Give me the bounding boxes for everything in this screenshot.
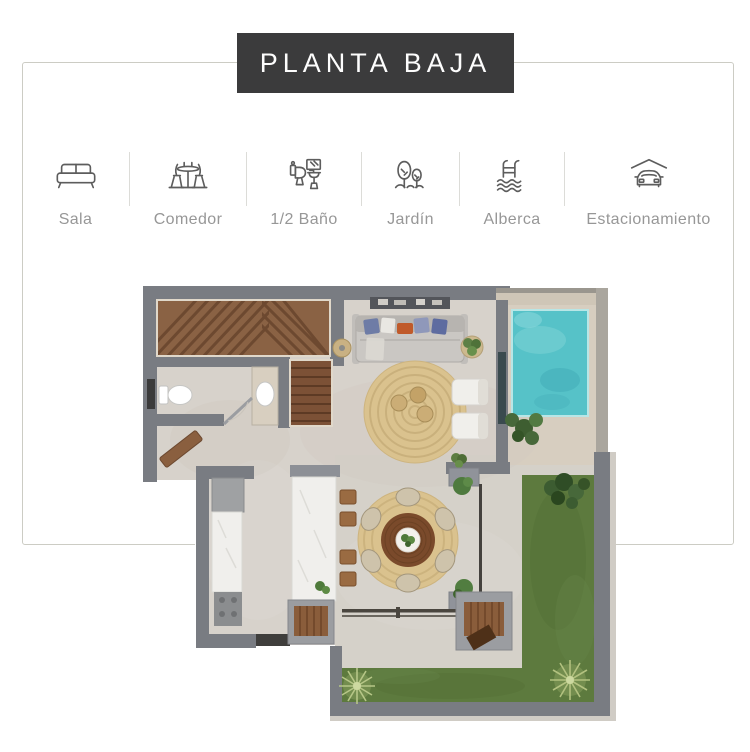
legend-item-jardin: Jardín (362, 150, 459, 246)
car-garage-icon (626, 150, 672, 202)
legend-item-sala: Sala (22, 150, 129, 246)
legend-item-estacionamiento: Estacionamiento (565, 150, 732, 246)
terrace (342, 592, 512, 650)
grill-structure (456, 592, 512, 650)
terrace-railing (342, 609, 458, 613)
legend-item-alberca: Alberca (460, 150, 564, 246)
legend-label: Jardín (387, 211, 434, 229)
legend-item-medio-bano: 1/2 Baño (247, 150, 361, 246)
legend-item-comedor: Comedor (130, 150, 246, 246)
amenities-legend: Sala Comedor (22, 150, 732, 246)
legend-label: Alberca (483, 211, 540, 229)
garden-trees-icon (388, 150, 434, 202)
legend-label: 1/2 Baño (270, 211, 337, 229)
pool-ladder-icon (489, 150, 535, 202)
dining-table-icon (165, 150, 211, 202)
half-bath-icon (281, 150, 327, 202)
stove (214, 592, 242, 626)
flyer: PLANTA BAJA Sala (0, 0, 750, 752)
island-cabinet (294, 606, 328, 636)
ornamental-grass-right (550, 660, 590, 700)
sofa-icon (53, 150, 99, 202)
island-plant (315, 581, 330, 594)
title-banner: PLANTA BAJA (237, 33, 514, 93)
legend-label: Estacionamiento (586, 211, 710, 229)
legend-label: Comedor (154, 211, 223, 229)
ornamental-grass-left (339, 668, 375, 704)
page-title: PLANTA BAJA (260, 48, 492, 79)
flyer-card (22, 62, 734, 545)
legend-label: Sala (59, 211, 93, 229)
